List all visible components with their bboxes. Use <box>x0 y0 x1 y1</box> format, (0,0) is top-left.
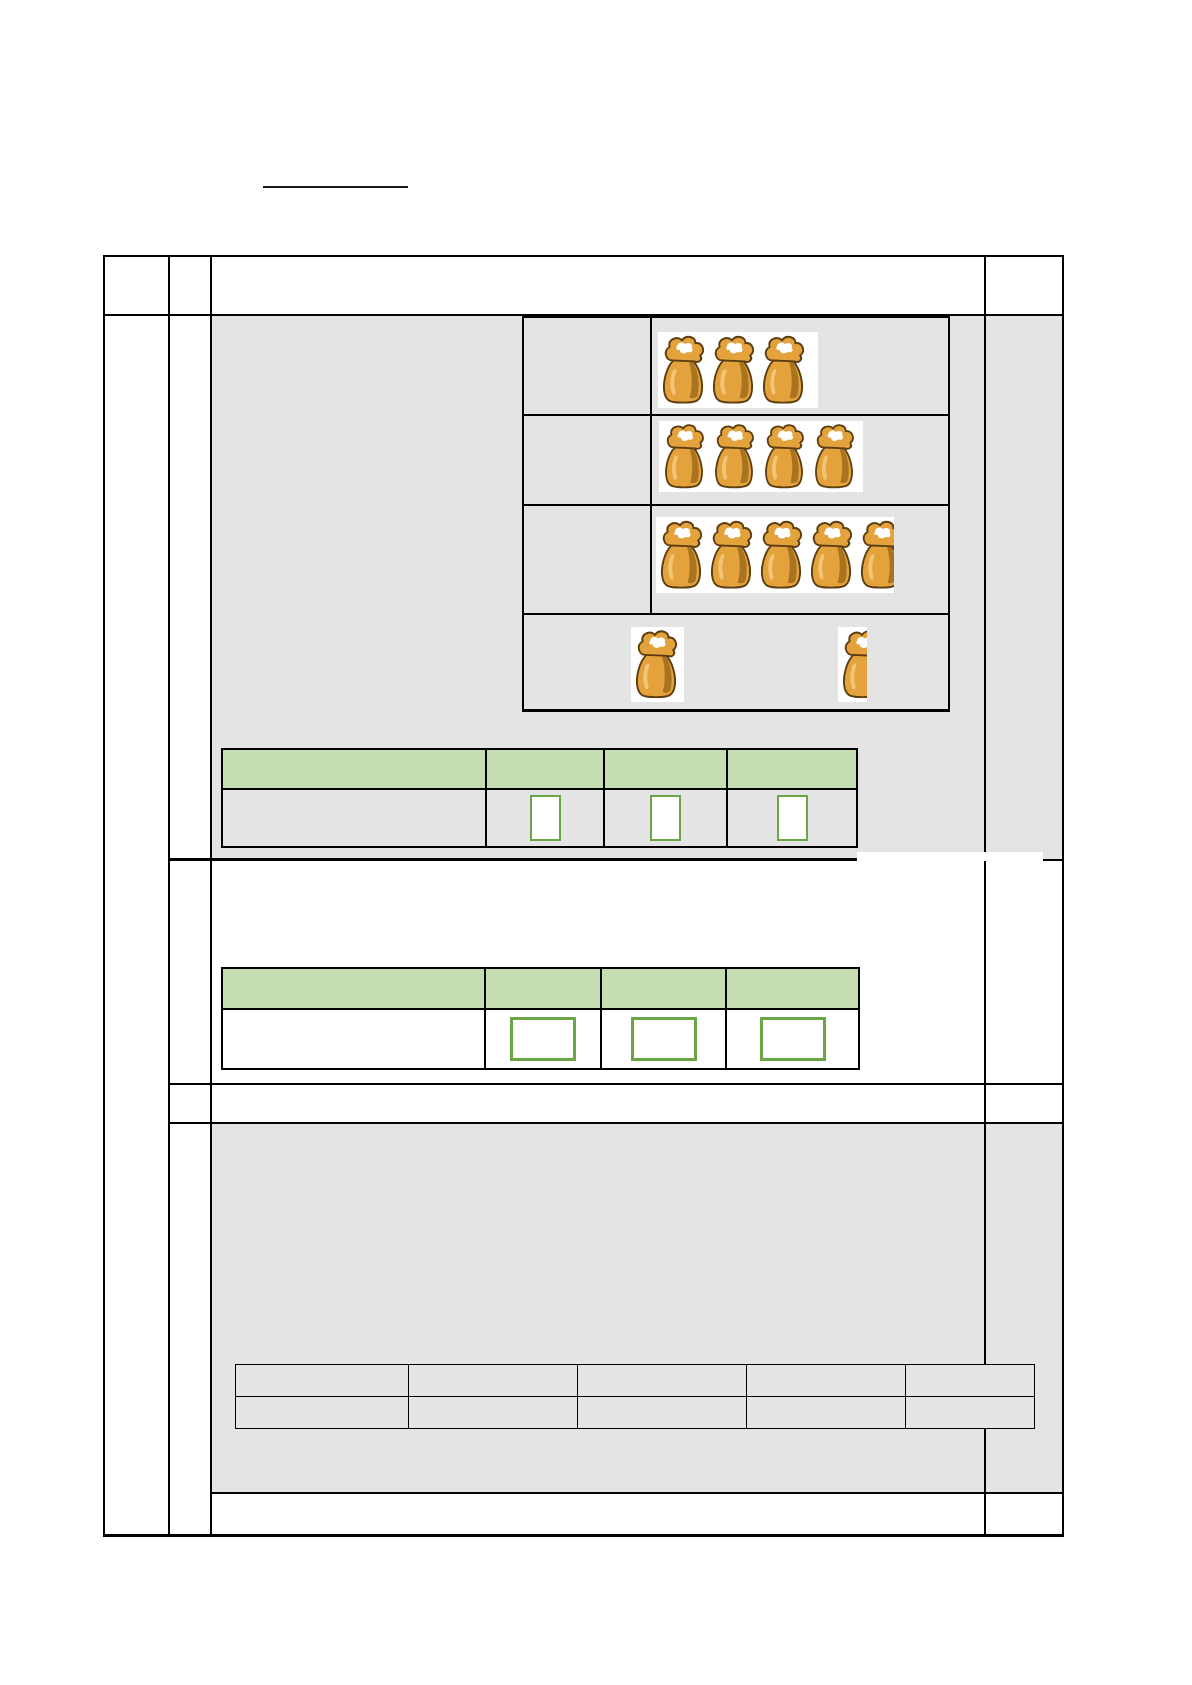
money-sack-icon <box>760 423 808 490</box>
money-sack-icon <box>857 519 894 591</box>
bag-table-row2-divider <box>522 504 950 506</box>
answer-box[interactable] <box>510 1017 576 1061</box>
answer-box[interactable] <box>760 1017 826 1061</box>
table-cell <box>578 1365 747 1396</box>
bag-row-4-image-left <box>631 627 684 702</box>
grid-line-row4-bottom <box>210 1492 1063 1494</box>
grid-line-bottom <box>103 1534 1064 1537</box>
money-sack-icon <box>660 423 708 490</box>
bag-table-column-divider <box>650 315 652 614</box>
money-sack-icon <box>759 334 807 406</box>
money-sack-icon <box>710 423 758 490</box>
table-cell <box>906 1365 1034 1396</box>
bag-row-1-images <box>658 332 818 408</box>
header-cell <box>727 969 858 1010</box>
answer-table-2-header-row <box>223 969 858 1010</box>
body-cell <box>487 790 605 846</box>
table-cell <box>236 1365 409 1396</box>
section-4-gray-background <box>211 1123 1062 1492</box>
answer-table-2 <box>221 967 860 1070</box>
grid-line-col2 <box>210 255 212 1536</box>
money-sack-icon <box>659 334 707 406</box>
bag-row-3-images <box>656 517 894 593</box>
title-underline[interactable] <box>263 186 408 188</box>
body-cell <box>223 1010 486 1068</box>
body-cell <box>223 790 487 846</box>
header-cell <box>605 750 728 790</box>
grid-line-col1 <box>168 255 170 1536</box>
header-cell <box>223 969 486 1010</box>
table-cell <box>747 1365 906 1396</box>
body-cell <box>602 1010 727 1068</box>
table-cell <box>409 1365 578 1396</box>
grid-line-row1-bottom <box>168 858 858 861</box>
answer-box[interactable] <box>530 795 561 841</box>
grid-line-row3-bottom <box>168 1122 1063 1124</box>
answer-line[interactable] <box>857 852 1043 861</box>
answer-table-2-body-row <box>223 1010 858 1068</box>
money-sack-icon <box>810 423 858 490</box>
table-cell <box>747 1397 906 1428</box>
bag-table-row3-divider <box>522 613 950 615</box>
money-sack-icon <box>657 519 705 591</box>
answer-box[interactable] <box>650 795 681 841</box>
bottom-table-row <box>236 1397 1034 1428</box>
money-sack-icon <box>807 519 855 591</box>
grid-line-col3 <box>984 255 986 1536</box>
money-sack-icon <box>707 519 755 591</box>
grid-line-top <box>103 255 1064 257</box>
header-cell <box>223 750 487 790</box>
table-cell <box>906 1397 1034 1428</box>
table-cell <box>236 1397 409 1428</box>
worksheet-page <box>0 0 1192 1685</box>
grid-line-left <box>103 255 105 1536</box>
bag-row-4-image-right-partial <box>838 627 867 702</box>
header-cell <box>728 750 856 790</box>
answer-table-1 <box>221 748 858 848</box>
header-cell <box>602 969 727 1010</box>
grid-line-row1-bottom-right <box>1043 859 1063 861</box>
bag-row-2-images <box>659 421 863 492</box>
answer-table-1-body-row <box>223 790 856 846</box>
table-cell <box>578 1397 747 1428</box>
bottom-table-row <box>236 1365 1034 1397</box>
table-cell <box>409 1397 578 1428</box>
grid-line-right <box>1062 255 1064 1536</box>
grid-line-row2-bottom <box>168 1083 1063 1085</box>
money-sack-icon <box>632 629 680 700</box>
header-cell <box>486 969 602 1010</box>
money-sack-icon <box>757 519 805 591</box>
bottom-table <box>235 1364 1035 1429</box>
money-sack-icon <box>709 334 757 406</box>
answer-box[interactable] <box>631 1017 697 1061</box>
body-cell <box>486 1010 602 1068</box>
answer-box[interactable] <box>777 795 808 841</box>
body-cell <box>728 790 856 846</box>
header-cell <box>487 750 605 790</box>
body-cell <box>605 790 728 846</box>
money-sack-icon <box>839 629 867 700</box>
answer-table-1-header-row <box>223 750 856 790</box>
bag-table-row1-divider <box>522 414 950 416</box>
body-cell <box>727 1010 858 1068</box>
